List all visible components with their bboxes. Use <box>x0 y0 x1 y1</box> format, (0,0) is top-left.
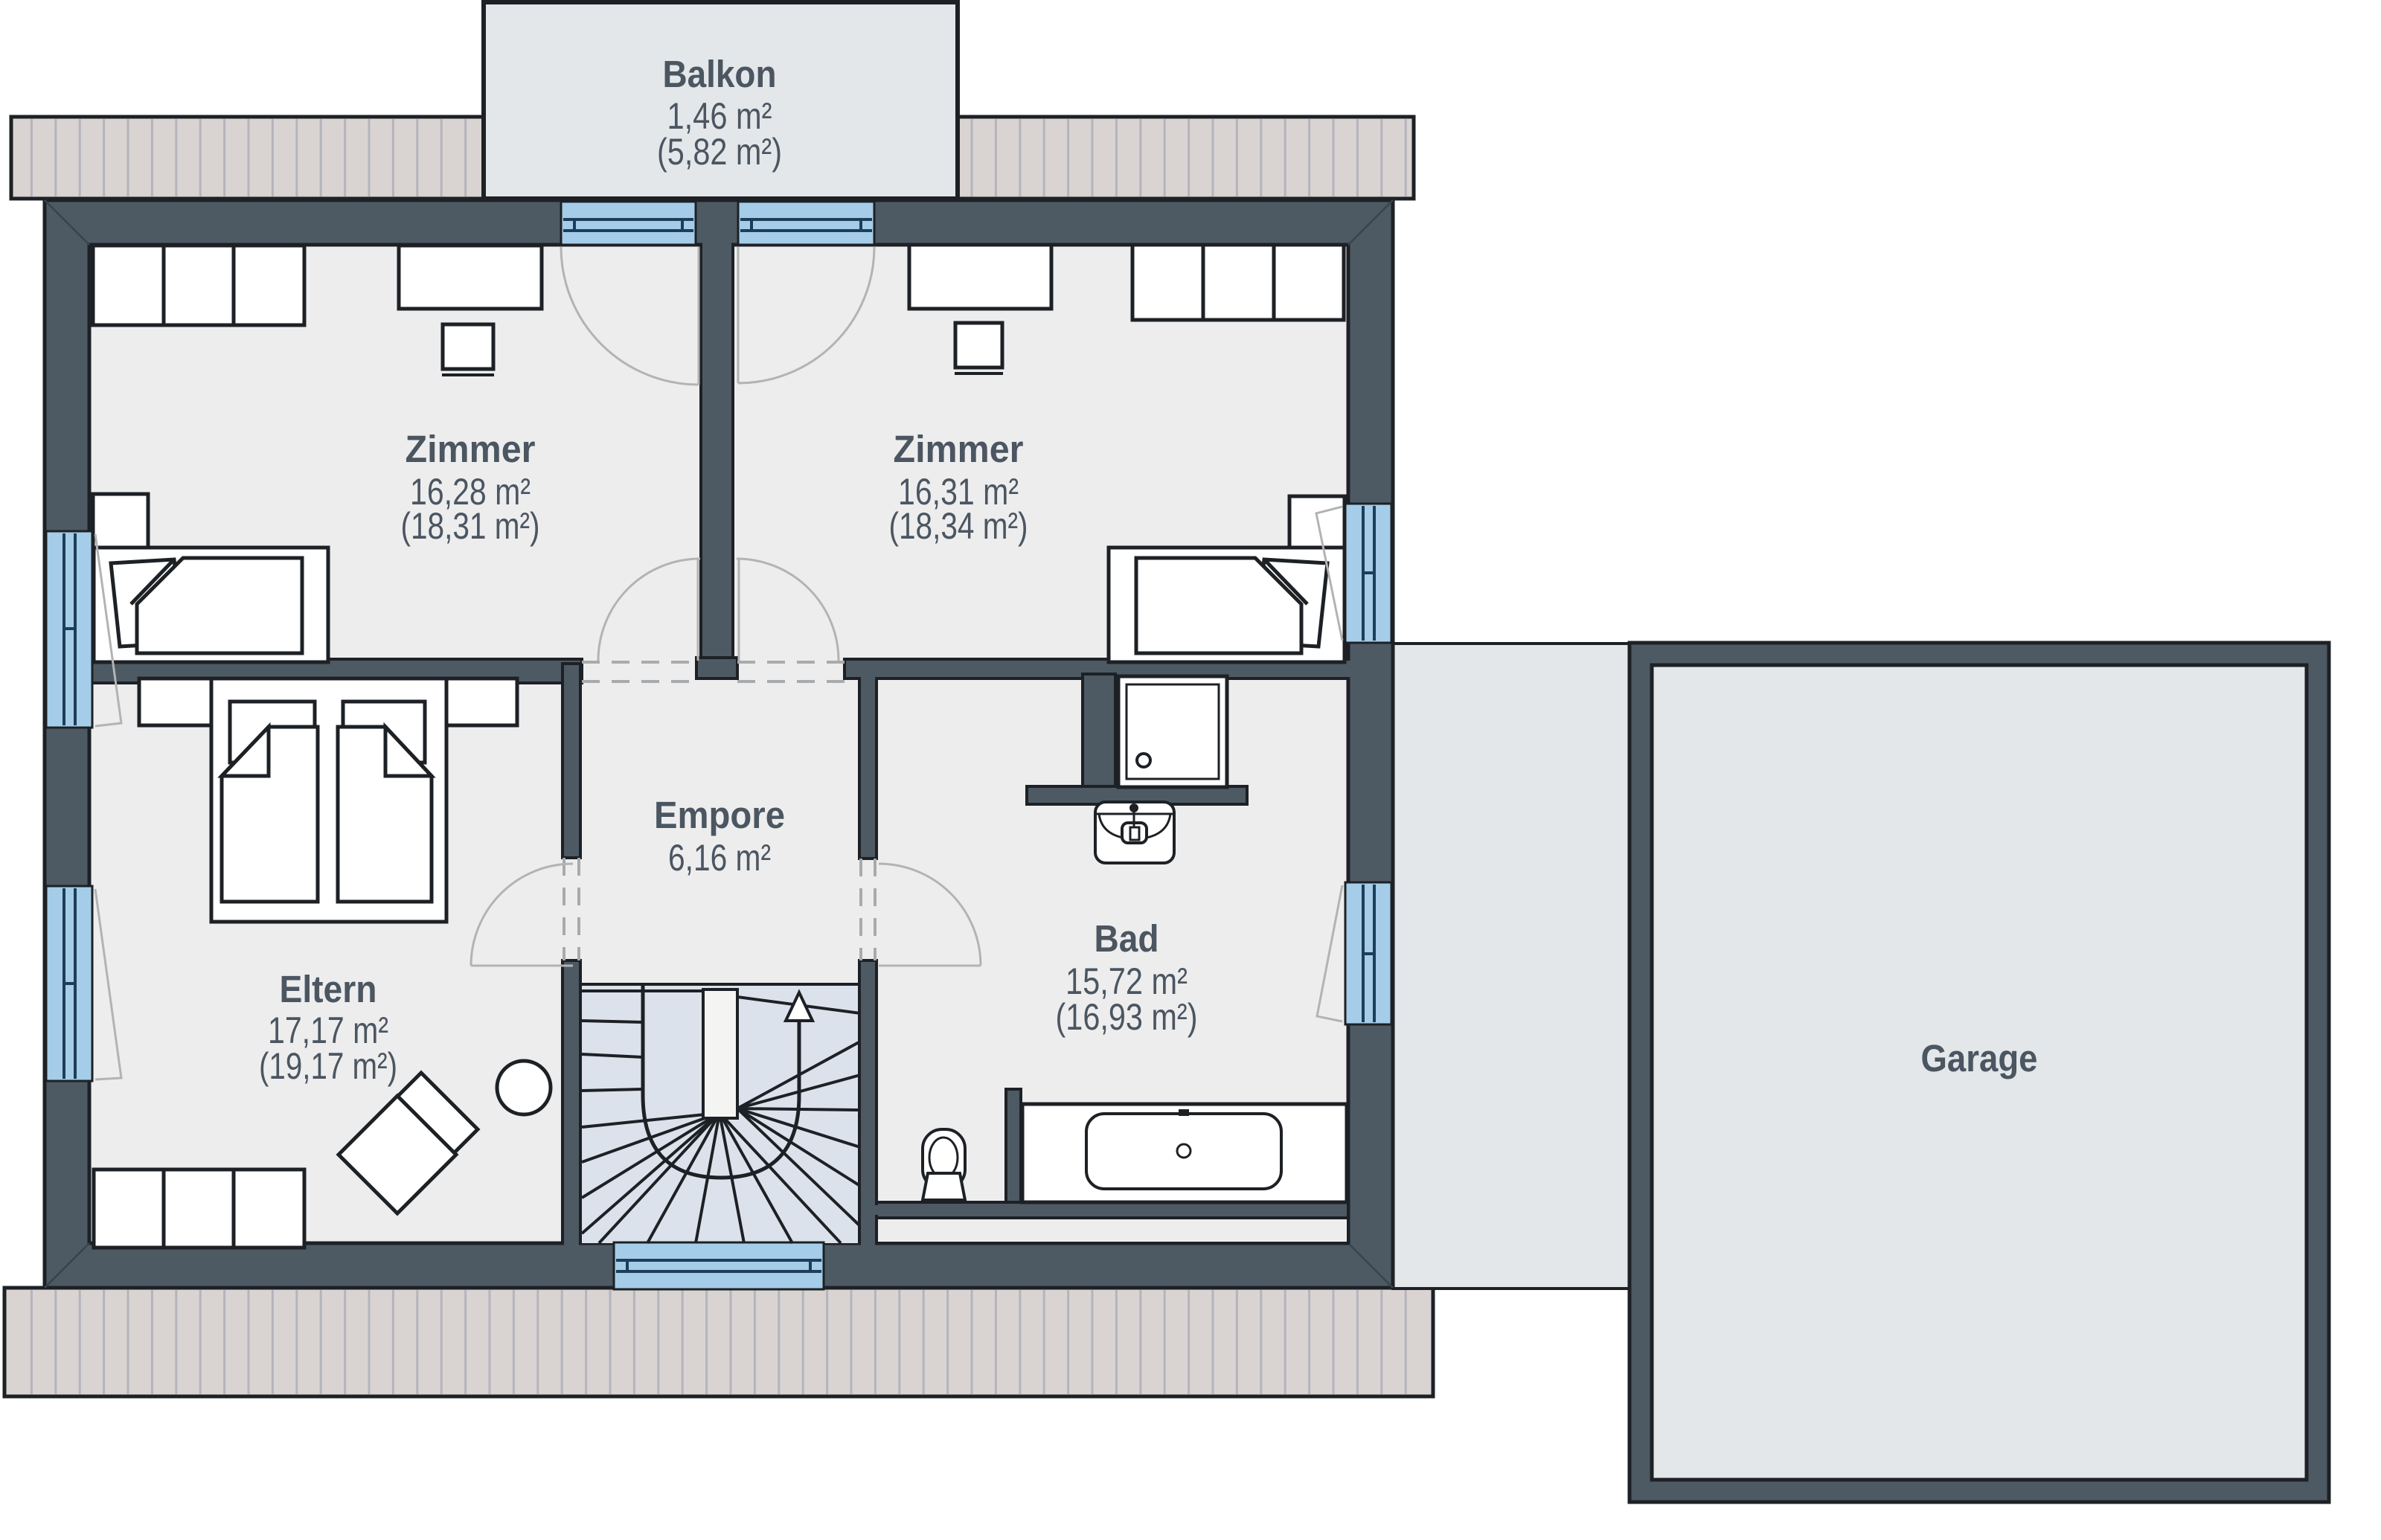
svg-text:(18,31 m²): (18,31 m²) <box>401 505 540 547</box>
svg-text:Zimmer: Zimmer <box>406 428 536 470</box>
svg-text:Eltern: Eltern <box>280 968 377 1010</box>
svg-text:Balkon: Balkon <box>663 53 777 95</box>
svg-text:(18,34 m²): (18,34 m²) <box>889 505 1028 547</box>
svg-text:6,16 m²: 6,16 m² <box>668 837 771 879</box>
svg-text:Bad: Bad <box>1095 917 1159 960</box>
svg-text:Zimmer: Zimmer <box>894 428 1024 470</box>
svg-text:Empore: Empore <box>654 794 785 836</box>
svg-text:Garage: Garage <box>1921 1037 2038 1079</box>
svg-text:(5,82 m²): (5,82 m²) <box>657 131 782 173</box>
svg-text:(19,17 m²): (19,17 m²) <box>259 1045 397 1087</box>
svg-text:(16,93 m²): (16,93 m²) <box>1056 996 1198 1038</box>
